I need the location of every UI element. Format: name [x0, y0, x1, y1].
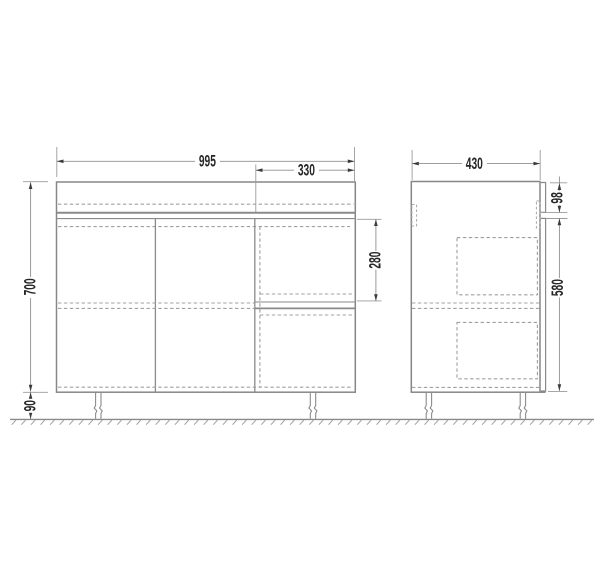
svg-text:330: 330 [298, 161, 315, 179]
svg-text:98: 98 [548, 192, 566, 204]
svg-text:580: 580 [549, 279, 567, 296]
svg-text:90: 90 [21, 400, 39, 412]
svg-text:430: 430 [466, 154, 483, 172]
svg-text:995: 995 [199, 152, 216, 170]
svg-text:280: 280 [366, 251, 384, 268]
svg-text:700: 700 [21, 278, 39, 295]
